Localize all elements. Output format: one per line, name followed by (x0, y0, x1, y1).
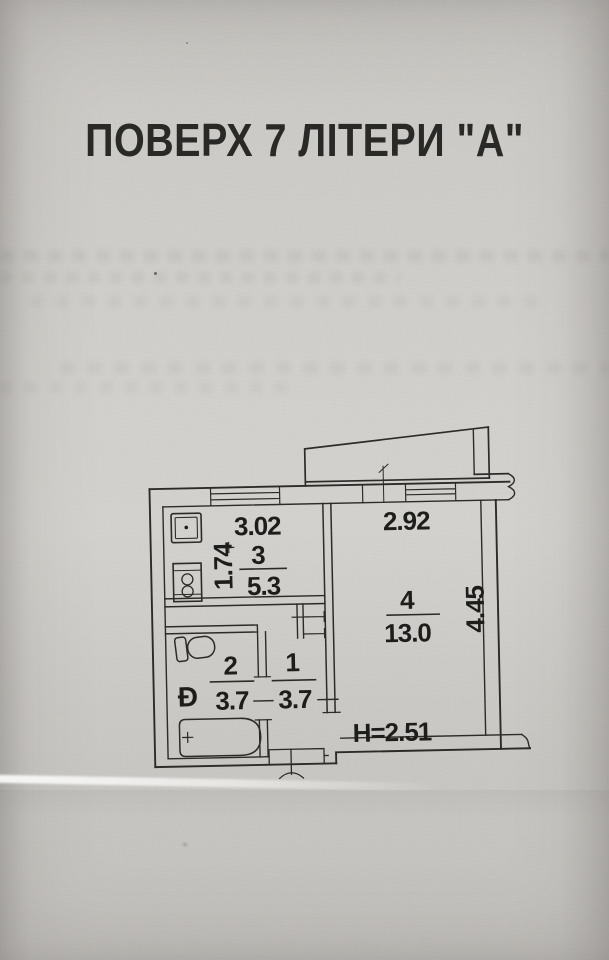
paper-speck (183, 843, 187, 846)
floor-plan-drawing: Ð 3.02 3 5.3 1.74 2.92 4 13.0 4.45 H=2.5… (136, 416, 564, 800)
room-label-3-number: 3 (251, 540, 266, 570)
fraction-line-room-1 (273, 680, 316, 681)
dimension-label-ceiling-height: H=2.51 (352, 716, 432, 748)
partition-bathroom-hall (253, 632, 272, 757)
partition-bathroom-top (165, 625, 257, 634)
dimension-label-room4-depth: 4.45 (460, 585, 491, 633)
bleed-through-smudge (30, 296, 550, 307)
washbasin-icon: Ð (178, 681, 199, 712)
dimension-label-room4-width: 2.92 (383, 505, 431, 536)
stove-icon (173, 563, 202, 602)
bleed-through-smudge (60, 362, 609, 374)
room-label-3-area: 5.3 (247, 570, 281, 601)
room-label-1-area: 3.7 (278, 684, 312, 715)
bleed-through-smudge (0, 382, 300, 393)
document-photo: ПОВЕРХ 7 ЛІТЕРИ "А" (0, 0, 609, 960)
bleed-through-smudge (0, 250, 609, 262)
room-label-1-number: 1 (285, 647, 300, 677)
paper-speck (154, 272, 157, 275)
room-label-4-area: 13.0 (384, 617, 432, 648)
kitchen-window (210, 486, 279, 505)
sink-icon (171, 513, 202, 543)
hall-closet-doors (292, 604, 325, 639)
room-label-4-number: 4 (400, 585, 416, 615)
dimension-label-kitchen-width: 3.02 (234, 510, 282, 541)
fraction-line-room-2 (211, 681, 254, 682)
balcony-outline (304, 427, 489, 486)
bathtub-icon (179, 718, 261, 757)
living-room-window (362, 483, 455, 503)
partition-living-room (319, 503, 340, 712)
dimension-label-kitchen-depth: 1.74 (208, 542, 239, 591)
paper-speck (186, 42, 188, 44)
page-title: ПОВЕРХ 7 ЛІТЕРИ "А" (43, 113, 567, 167)
paper-crease-shadow (0, 790, 609, 830)
fraction-line-room-3 (240, 568, 286, 569)
room-label-2-number: 2 (223, 650, 238, 680)
room-label-2-area: 3.7 (215, 685, 249, 716)
toilet-icon (174, 633, 216, 662)
bleed-through-smudge (0, 272, 400, 283)
fraction-line-room-4 (387, 614, 439, 615)
